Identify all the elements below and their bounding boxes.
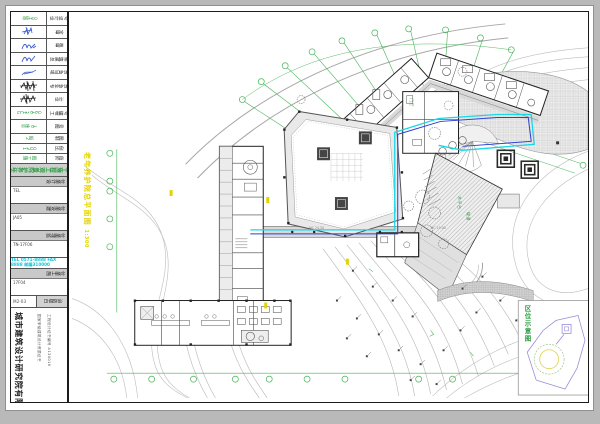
owner-unit-code: JA05 <box>11 214 67 230</box>
sheet-no-label: 图 号 <box>46 120 67 133</box>
supervision-unit-code: TN-17F06 <box>11 241 67 257</box>
title-row-project-no: GC 13-0160 工程编号 <box>11 107 67 121</box>
title-block: 甲级100 设计证号 审 定 审 核 总建筑师 项目负责 专业负责 设 计 GC <box>10 11 68 403</box>
discipline-lead-label: 专业负责 <box>46 80 67 93</box>
checked-label: 审 核 <box>46 39 67 52</box>
section-contractor-unit: 施工单位 17F04 <box>11 269 67 296</box>
scale-label: 比 例 <box>46 144 67 153</box>
signature-icon <box>20 53 38 64</box>
contact-line: TEL 0571-8888 FAX 8888 邮编310000 <box>11 258 67 269</box>
drawing-title-text: 老年养护院总平面图 <box>83 152 91 226</box>
dim-text-2: MC 19.00 <box>431 226 446 230</box>
section-owner-unit: 建设单位 JA05 <box>11 204 67 231</box>
title-row-drawn: 2期 制 图 <box>11 134 67 144</box>
drawing-sheet: 甲级100 设计证号 审 定 审 核 总建筑师 项目负责 专业负责 设 计 GC <box>5 5 594 411</box>
design-unit-bar: 设计单位 <box>11 177 67 187</box>
company-name: 城市建筑设计研究院有限公司 <box>13 312 24 403</box>
title-row-discipline-lead: 专业负责 <box>11 80 67 94</box>
annotation-deck: 木平台 <box>456 196 462 210</box>
project-lead-label: 项目负责 <box>46 66 67 79</box>
title-row-designer: 设 计 <box>11 93 67 107</box>
company-credential-1: 国家甲级建筑设计资质证书 <box>36 314 41 362</box>
drawn-value: 2期 <box>11 134 46 143</box>
title-row-approved: 审 定 <box>11 26 67 40</box>
signature-icon <box>19 80 39 92</box>
drawing-title: 老年养护院总平面图 1:300 <box>82 152 92 248</box>
title-row-phase: 施工图 阶 段 <box>11 154 67 164</box>
owner-unit-bar: 建设单位 <box>11 204 67 214</box>
design-unit-code: TEL <box>11 187 67 203</box>
phase-label: 阶 段 <box>46 154 67 163</box>
title-row-chief-architect: 总建筑师 <box>11 53 67 67</box>
scanned-cad-sheet: { "colors": { "grid_green": "#46b257", "… <box>0 0 600 424</box>
bottom-wing <box>134 300 292 346</box>
title-row-sheet-no: 总施-01 图 号 <box>11 120 67 134</box>
approved-label: 审 定 <box>46 26 67 39</box>
signature-icon <box>19 93 39 105</box>
inset-map-label: 区位示意图 <box>522 305 532 343</box>
company-credential-2: 工程设计证书编号 A130016 <box>46 314 51 366</box>
phase-value: 施工图 <box>11 154 46 163</box>
title-row-checked: 审 核 <box>11 39 67 53</box>
signature-icon <box>20 67 38 78</box>
garden-building <box>377 233 419 257</box>
pest-control-row: M2-03 白蚁防治 <box>11 296 67 308</box>
designer-label: 设 计 <box>46 93 67 106</box>
project-no-label: 工程编号 <box>46 107 67 120</box>
project-name: 老年养护院景观工程施工图 <box>11 164 67 177</box>
scale-value: 1:300 <box>11 144 46 153</box>
pest-code: M2-03 <box>11 296 36 307</box>
supervision-unit-bar: 监理单位 <box>11 231 67 241</box>
certificate-value: 甲级100 <box>11 12 46 25</box>
signature-icon <box>20 40 38 51</box>
section-supervision-unit: 监理单位 TN-17F06 <box>11 231 67 258</box>
contractor-unit-bar: 施工单位 <box>11 269 67 279</box>
drawing-title-scale: 1:300 <box>83 229 89 247</box>
section-design-unit: 设计单位 TEL <box>11 177 67 204</box>
title-row-certificate: 甲级100 设计证号 <box>11 12 67 26</box>
courtyard <box>283 110 404 237</box>
annotation-ramp: 坡道 <box>465 212 471 221</box>
title-row-project-lead: 项目负责 <box>11 66 67 80</box>
project-no-value: GC 13-0160 <box>11 107 46 120</box>
drawing-frame: MC 24.50 MC 19.00 <box>68 11 589 403</box>
title-row-scale: 1:300 比 例 <box>11 144 67 154</box>
site-plan: MC 24.50 MC 19.00 <box>69 12 588 402</box>
contractor-unit-code: 17F04 <box>11 279 67 295</box>
sheet-no-value: 总施-01 <box>11 120 46 133</box>
pest-bar: 白蚁防治 <box>36 296 67 307</box>
company-box: 城市建筑设计研究院有限公司 国家甲级建筑设计资质证书 工程设计证书编号 A130… <box>11 308 67 403</box>
signature-icon <box>20 26 38 37</box>
ramp-roof <box>405 137 503 297</box>
annotation-lobby: 门厅 <box>408 98 414 107</box>
dim-text-1: MC 24.50 <box>309 226 324 230</box>
drawn-label: 制 图 <box>46 134 67 143</box>
certificate-label: 设计证号 <box>46 12 67 25</box>
spiral-planters <box>497 150 538 178</box>
chief-architect-label: 总建筑师 <box>46 53 67 66</box>
